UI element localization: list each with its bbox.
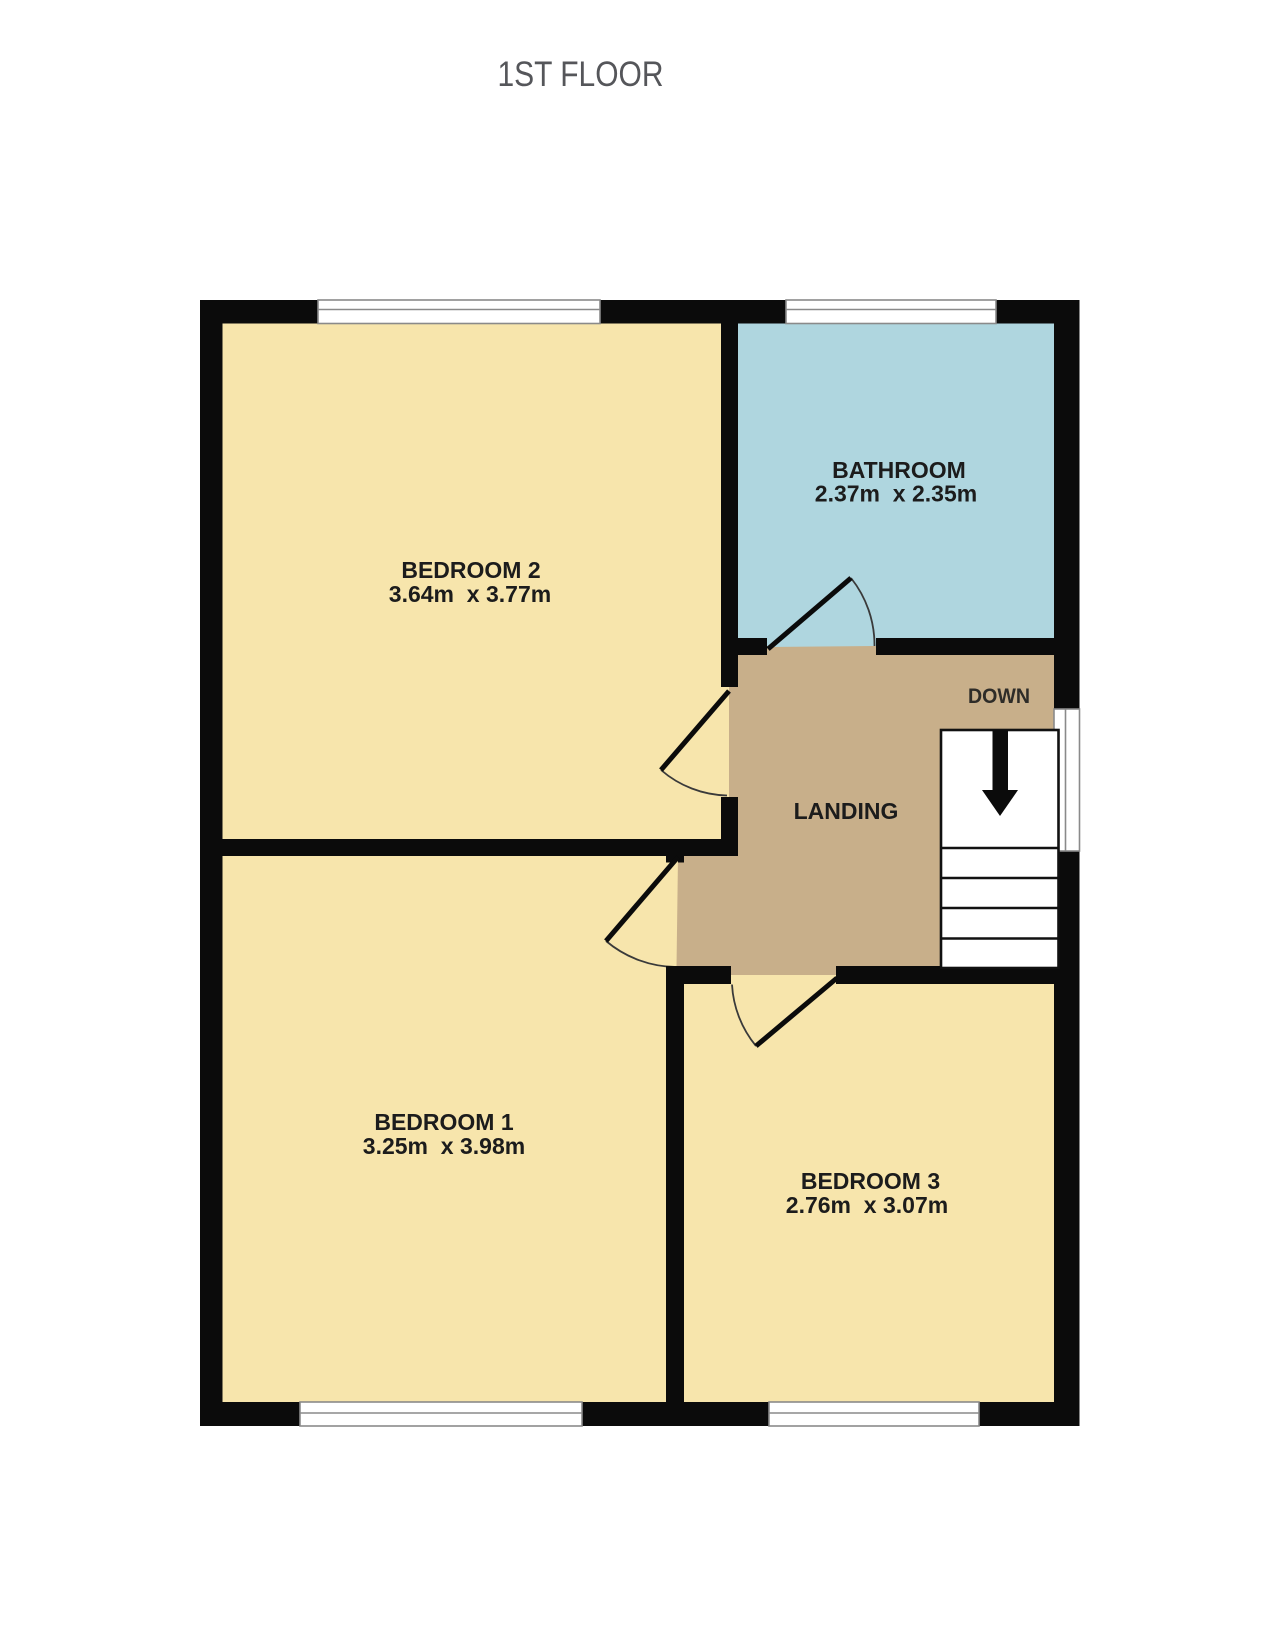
svg-text:BEDROOM 1: BEDROOM 1 bbox=[374, 1109, 514, 1135]
svg-text:BEDROOM 3: BEDROOM 3 bbox=[801, 1168, 940, 1194]
svg-text:3.64m x 3.77m: 3.64m x 3.77m bbox=[389, 581, 551, 607]
svg-text:2.76m x 3.07m: 2.76m x 3.07m bbox=[786, 1192, 948, 1218]
svg-text:BATHROOM: BATHROOM bbox=[832, 457, 966, 483]
svg-text:DOWN: DOWN bbox=[968, 684, 1030, 708]
svg-text:2.37m x 2.35m: 2.37m x 2.35m bbox=[815, 481, 977, 507]
svg-text:1ST FLOOR: 1ST FLOOR bbox=[498, 55, 664, 94]
svg-text:BEDROOM 2: BEDROOM 2 bbox=[401, 557, 540, 583]
svg-text:LANDING: LANDING bbox=[794, 798, 899, 824]
svg-text:3.25m x 3.98m: 3.25m x 3.98m bbox=[363, 1133, 525, 1159]
